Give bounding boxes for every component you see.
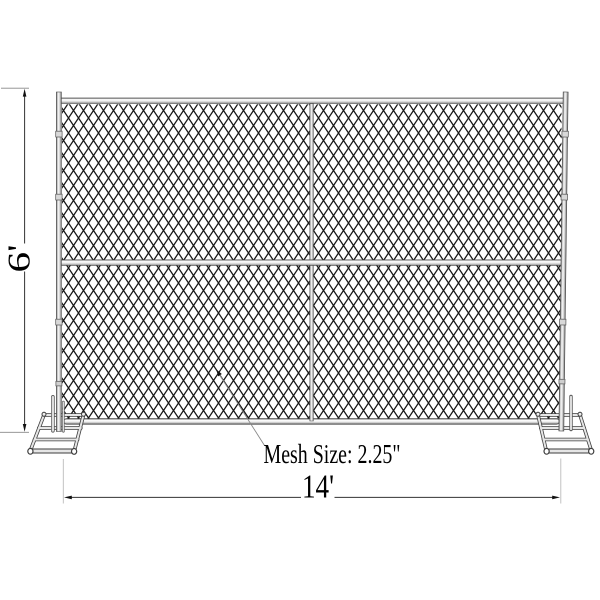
svg-text:14': 14' xyxy=(302,469,334,506)
svg-text:6': 6' xyxy=(2,245,37,273)
svg-text:Mesh Size: 2.25": Mesh Size: 2.25" xyxy=(264,438,401,469)
